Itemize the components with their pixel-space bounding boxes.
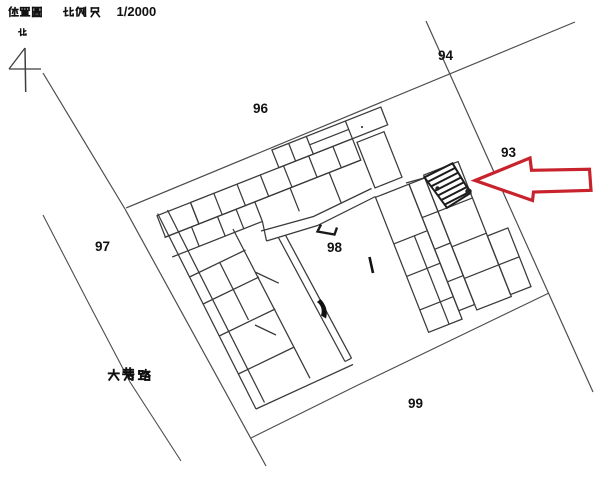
svg-text:1/2000: 1/2000	[117, 4, 157, 19]
svg-text:98: 98	[327, 240, 343, 255]
svg-text:94: 94	[438, 48, 454, 63]
svg-text:93: 93	[501, 145, 517, 160]
svg-text:97: 97	[95, 239, 110, 254]
svg-text:99: 99	[408, 396, 423, 411]
svg-text:96: 96	[253, 101, 269, 116]
